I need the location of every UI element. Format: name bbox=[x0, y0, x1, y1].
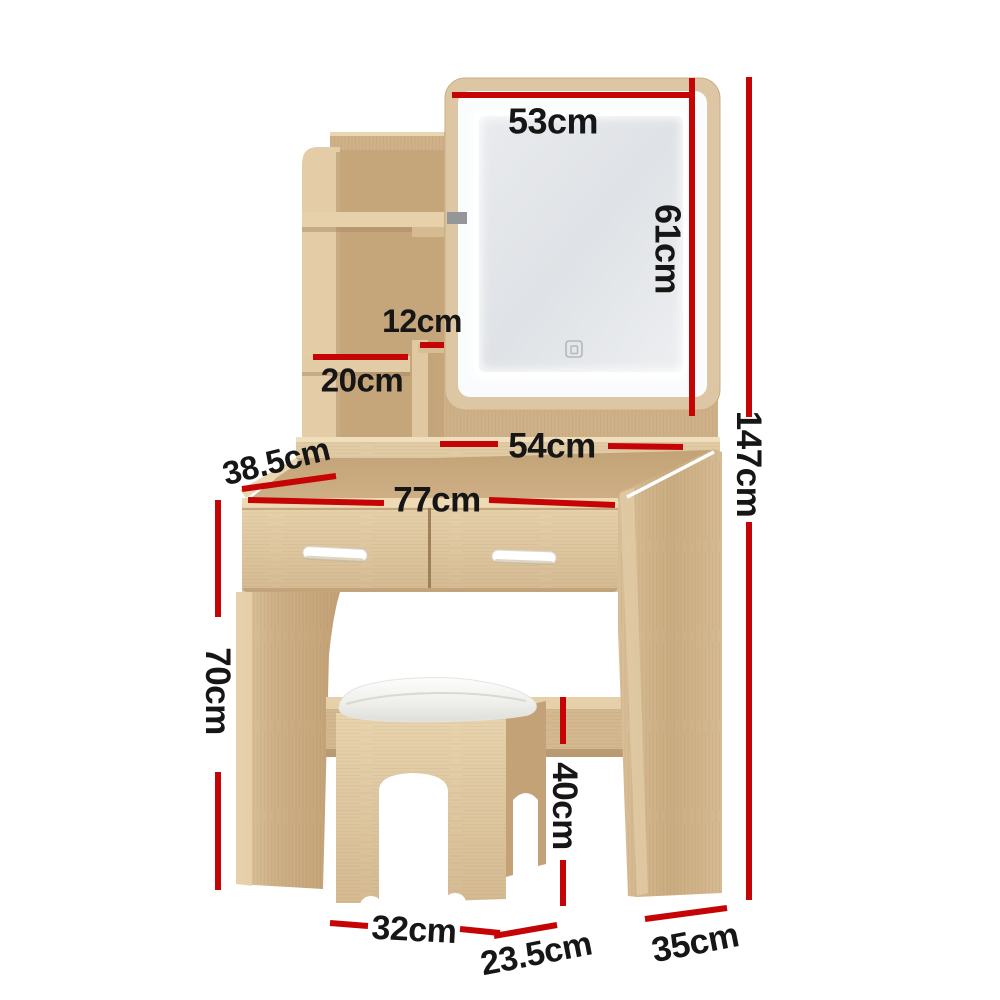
measure-line-stool-width-right bbox=[460, 929, 500, 933]
measure-label-desk-width: 77cm bbox=[393, 480, 481, 519]
product-dimension-image: 53cm 61cm 147cm 12cm 20cm 54cm 38.5cm 77… bbox=[0, 0, 1000, 1000]
desk-left-leg-edge bbox=[236, 592, 252, 886]
stool-front-grain bbox=[336, 713, 506, 903]
top-shelf-bracket bbox=[412, 227, 444, 237]
stool-side-face bbox=[506, 701, 546, 877]
hutch-divider-shadow bbox=[428, 340, 434, 440]
measure-label-shelf-width: 20cm bbox=[321, 362, 403, 399]
measure-line-base-depth bbox=[645, 908, 727, 919]
measure-label-mirror-height: 61cm bbox=[647, 204, 688, 294]
hutch-top-shelf bbox=[302, 212, 444, 227]
measure-label-mirror-width: 53cm bbox=[508, 101, 598, 142]
measure-label-stool-height: 40cm bbox=[545, 762, 584, 850]
drawer-seam bbox=[428, 508, 431, 588]
measure-label-cubby-width: 12cm bbox=[382, 303, 462, 339]
mount-bracket-gray bbox=[447, 212, 467, 224]
measure-line-stool-width-left bbox=[330, 923, 368, 926]
measure-label-total-height: 147cm bbox=[729, 411, 768, 517]
measure-label-shelf-span: 54cm bbox=[508, 426, 596, 465]
drawer-bottom-gap bbox=[242, 588, 618, 592]
hutch-back-top-edge bbox=[330, 132, 444, 136]
measure-label-base-depth: 35cm bbox=[648, 915, 741, 970]
stool-right-foot-notch bbox=[444, 893, 466, 913]
measure-label-stool-width: 32cm bbox=[371, 909, 458, 951]
right-drawer-handle bbox=[492, 550, 556, 565]
furniture-diagram: 53cm 61cm 147cm 12cm 20cm 54cm 38.5cm 77… bbox=[0, 0, 1000, 1000]
measure-label-leg-height: 70cm bbox=[198, 647, 237, 735]
stool bbox=[336, 678, 546, 916]
measure-line-shelf-span-right bbox=[608, 446, 683, 447]
measure-line-desk-width-left bbox=[248, 500, 384, 503]
